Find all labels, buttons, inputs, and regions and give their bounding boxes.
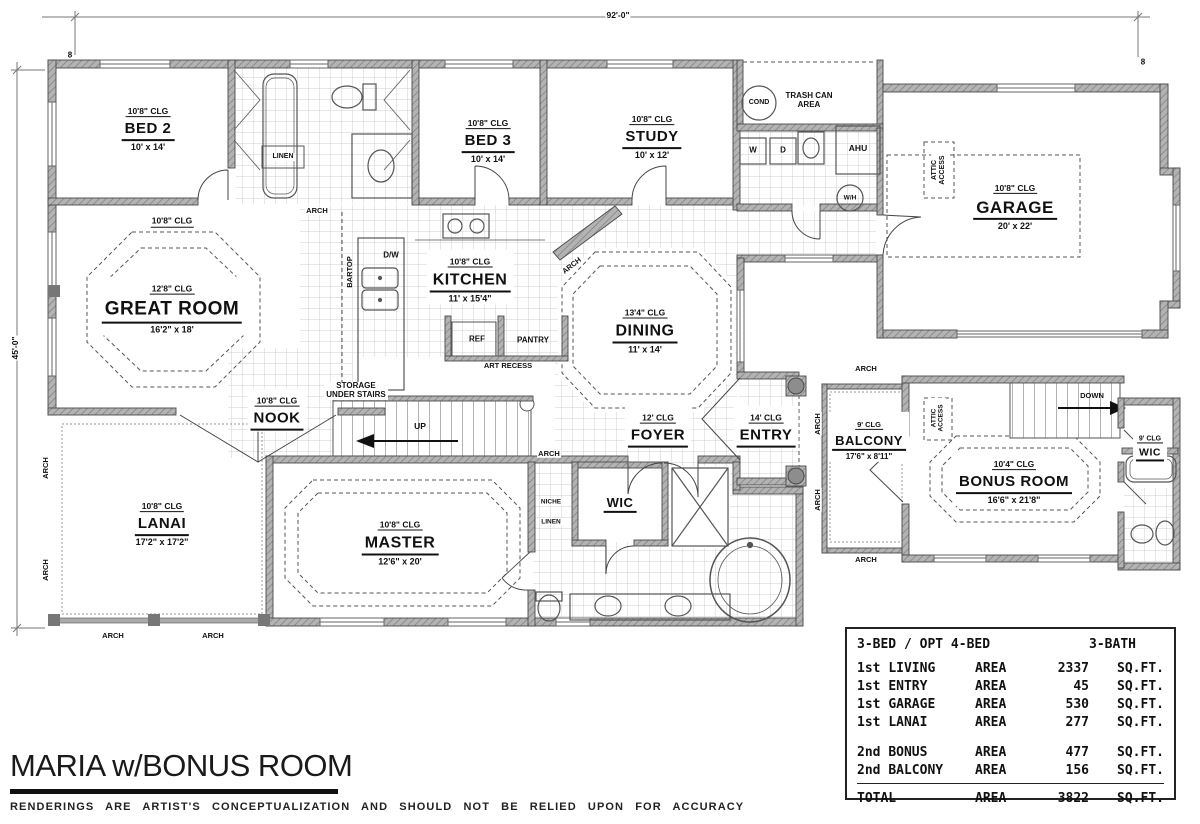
linen-closet-label: LINEN [272,153,295,161]
room-dining: 13'4" CLG DINING 11' x 14' [610,301,681,356]
stairs-up-label: UP [413,422,427,432]
attic-access-label: ATTIC ACCESS [931,398,946,438]
room-wic-bonus: 9' CLG WIC [1133,425,1167,462]
room-bed2: 10'8" CLG BED 2 10' x 14' [119,99,178,153]
plan-title: MARIA w/BONUS ROOM [10,748,744,784]
trash-can-area-label: TRASH CAN AREA [779,92,839,110]
great-room-outer-ceiling-label: 10'8" CLG [151,217,194,228]
dimension-height-label: 45'-0" [11,335,21,360]
arch-label: ARCH [814,488,822,512]
ahu-label: AHU [848,144,868,154]
room-balcony: 9' CLG BALCONY 17'6" x 8'11" [829,412,909,462]
art-recess-label: ART RECESS [483,362,533,370]
arch-label: ARCH [42,558,50,582]
arch-label: ARCH [305,207,329,215]
dimension-width-label: 92'-0" [605,11,630,21]
room-wic-master: WIC [601,494,640,514]
title-underline [10,789,338,794]
washer-label: W [748,147,758,156]
arch-label: ARCH [201,632,225,640]
room-bed3: 10'8" CLG BED 3 10' x 14' [459,111,518,165]
disclaimer-text: RENDERINGS ARE ARTIST'S CONCEPTUALIZATIO… [10,801,744,813]
table-total-row: TOTAL AREA 3822 SQ.FT. [857,783,1164,807]
table-row: 1st LIVING AREA 2337 SQ.FT. [857,659,1164,677]
area-summary-table: 3-BED / OPT 4-BED 3-BATH 1st LIVING AREA… [845,627,1176,800]
condenser-label: COND [748,99,771,107]
room-master: 10'8" CLG MASTER 12'6" x 20' [359,513,442,568]
table-header: 3-BED / OPT 4-BED 3-BATH [857,637,1164,652]
room-foyer: 12' CLG FOYER [625,406,691,449]
water-heater-label: W/H [843,194,858,201]
pantry-label: PANTRY [516,337,550,346]
floorplan-page: 92'-0" 45'-0" 8 8 10'8" CLG BED 2 10' x … [0,0,1200,824]
room-nook: 10'8" CLG NOOK [248,389,307,432]
arch-label: ARCH [854,556,878,564]
table-row: 2nd BONUS AREA 477 SQ.FT. [857,743,1164,761]
room-garage: 10'8" CLG GARAGE 20' x 22' [970,176,1060,232]
arch-label: ARCH [537,450,561,458]
linen-closet-label: LINEN [540,518,562,525]
stairs-down-label: DOWN [1079,392,1105,400]
table-row: 1st ENTRY AREA 45 SQ.FT. [857,677,1164,695]
room-lanai: 10'8" CLG LANAI 17'2" x 17'2" [132,494,192,548]
room-entry: 14' CLG ENTRY [734,406,799,449]
bed-config-label: 3-BED / OPT 4-BED [857,637,990,652]
arch-label: ARCH [854,365,878,373]
room-great-room: 12'8" CLG GREAT ROOM 16'2" x 18' [99,277,245,336]
arch-label: ARCH [101,632,125,640]
storage-under-stairs-label: STORAGE UNDER STAIRS [324,382,388,400]
room-bonus: 10'4" CLG BONUS ROOM 16'6" x 21'8" [953,452,1075,506]
corner-marker: 8 [1140,59,1146,68]
refrigerator-label: REF [468,336,486,345]
title-block: MARIA w/BONUS ROOM RENDERINGS ARE ARTIST… [10,748,744,813]
arch-label: ARCH [42,456,50,480]
room-study: 10'8" CLG STUDY 10' x 12' [619,107,684,161]
table-row: 1st LANAI AREA 277 SQ.FT. [857,713,1164,731]
table-row: 2nd BALCONY AREA 156 SQ.FT. [857,761,1164,779]
dryer-label: D [779,147,787,156]
corner-marker: 8 [67,52,73,61]
niche-label: NICHE [540,498,562,505]
room-kitchen: 10'8" CLG KITCHEN 11' x 15'4" [427,250,514,305]
table-row: 1st GARAGE AREA 530 SQ.FT. [857,695,1164,713]
bartop-label: BARTOP [346,255,354,289]
dishwasher-label: D/W [382,252,400,261]
attic-access-label: ATTIC ACCESS [931,147,947,193]
bath-config-label: 3-BATH [1089,637,1136,652]
arch-label: ARCH [814,412,822,436]
